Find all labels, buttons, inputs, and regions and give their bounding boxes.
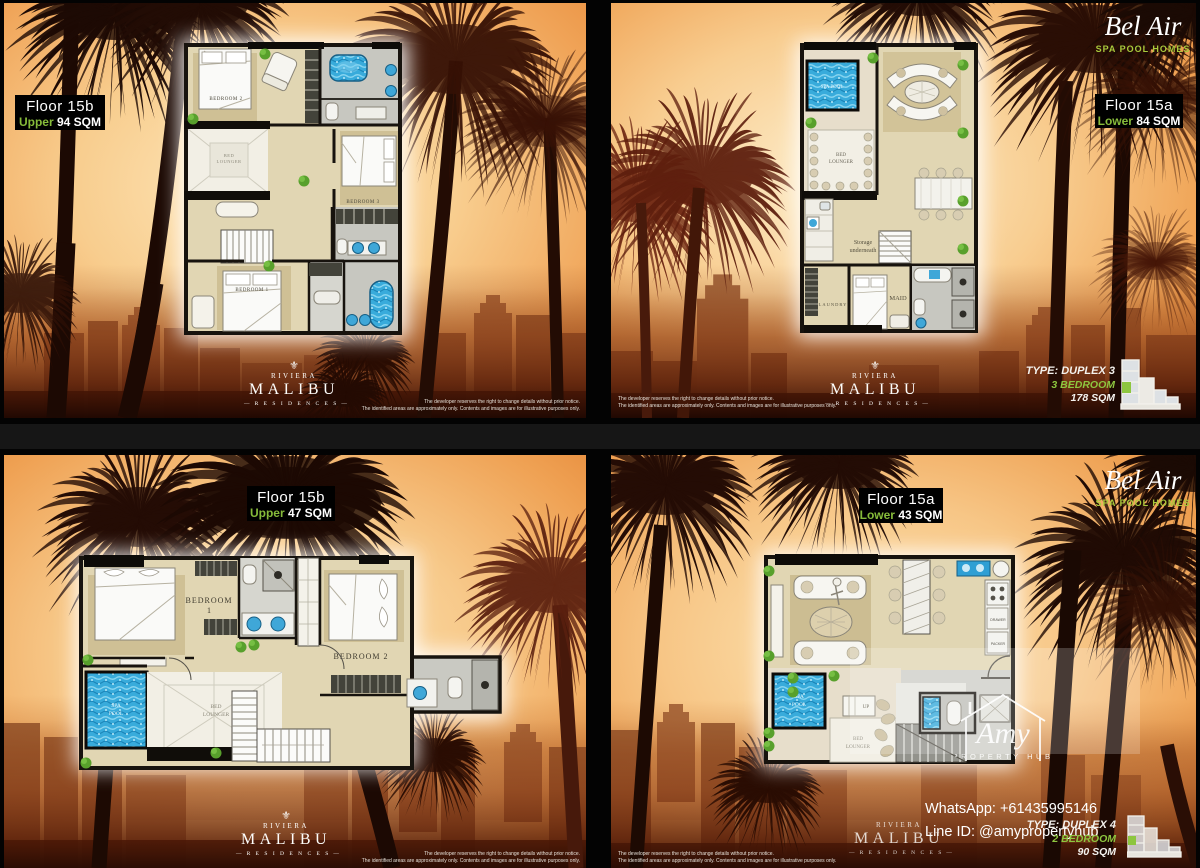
svg-text:LOUNGER: LOUNGER [829,160,854,165]
svg-text:1: 1 [207,606,211,615]
svg-text:BEDROOM: BEDROOM [185,596,232,605]
svg-text:SPA: SPA [111,703,121,709]
svg-text:Amy: Amy [974,717,1030,750]
svg-text:underneath: underneath [850,248,877,254]
svg-text:SPA POOL: SPA POOL [821,85,844,90]
svg-text:LOUNGER: LOUNGER [203,712,230,718]
svg-text:MAID: MAID [889,295,907,302]
svg-text:BED: BED [224,153,235,158]
svg-text:PROPERTY HUB: PROPERTY HUB [955,752,1051,761]
svg-text:LOUNGER: LOUNGER [217,159,242,164]
svg-text:BEDROOM 2: BEDROOM 2 [209,97,242,102]
svg-text:BED: BED [836,153,846,158]
svg-text:Storage: Storage [854,240,873,246]
svg-text:BEDROOM 1: BEDROOM 1 [235,288,268,293]
svg-text:LAUNDRY: LAUNDRY [819,302,848,307]
svg-text:DRAWER: DRAWER [990,618,1006,622]
svg-text:PACKER: PACKER [991,642,1006,646]
svg-text:POOL: POOL [792,702,807,708]
svg-text:BED: BED [211,704,222,710]
svg-text:POOL: POOL [109,711,124,717]
svg-text:BEDROOM 3: BEDROOM 3 [346,200,379,205]
